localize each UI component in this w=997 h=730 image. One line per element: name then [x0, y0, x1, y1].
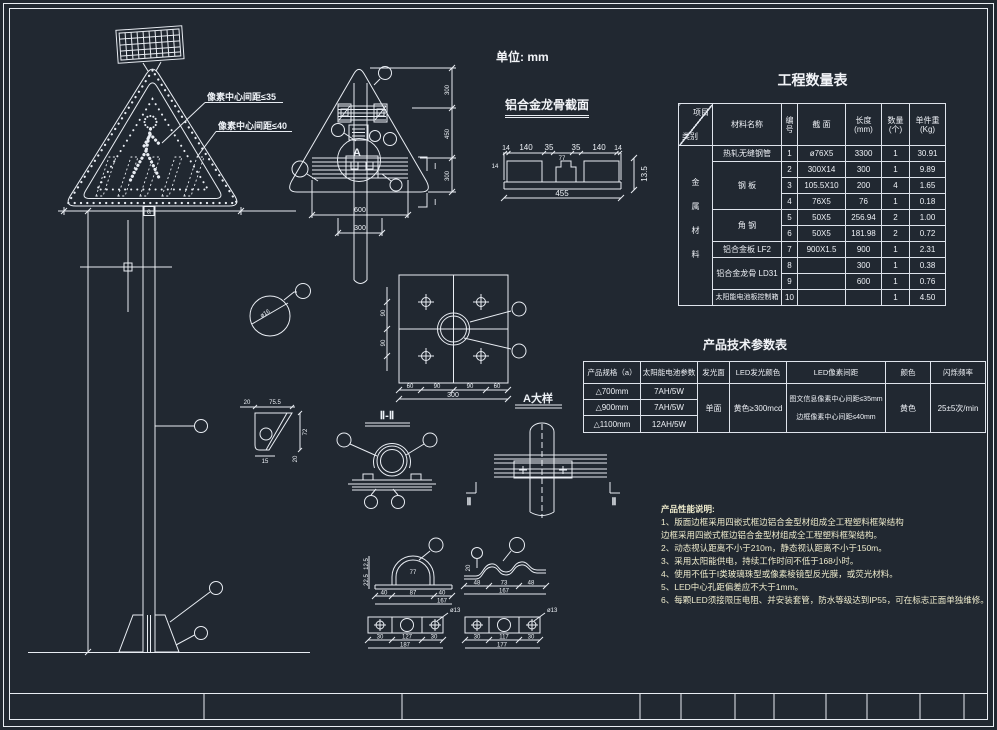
dim-label: 20 [244, 400, 251, 406]
dim-label: 127 [402, 635, 413, 641]
cell-section: ø76X5 [798, 146, 846, 162]
dim-label: 177 [497, 643, 508, 649]
param-header-color: 颜色 [886, 362, 931, 384]
pixel-pitch-40-label: 像素中心间距≤40 [217, 120, 287, 131]
unit-label: 单位: mm [496, 48, 549, 65]
cell-no: 9 [782, 274, 798, 290]
dim-label: 90 [381, 339, 387, 346]
cell-qty: 1 [882, 290, 910, 306]
cell-qty: 4 [882, 178, 910, 194]
flash-cell: 25±5次/min [931, 384, 986, 433]
cell-length: 900 [846, 242, 882, 258]
cell-section [798, 274, 846, 290]
material-cell: 热轧无缝钢管 [713, 146, 782, 162]
upper-beam-clamp [338, 104, 387, 122]
table-row: 铝合金板 LF2 7 900X1.5 900 1 2.31 [679, 242, 946, 258]
dim-label: 48 [528, 581, 535, 587]
dim-label: 20 [293, 455, 299, 462]
dim-label: 77 [410, 570, 417, 576]
params-table: 产品规格（a） 太阳能电池参数 发光面 LED发光颜色 LED像素间距 颜色 闪… [583, 361, 986, 433]
dim-label: 90 [467, 384, 474, 390]
dim-label: 300 [445, 84, 451, 95]
cell-no: 4 [782, 194, 798, 210]
cell-length: 256.94 [846, 210, 882, 226]
width-dim-label: a [147, 209, 151, 216]
hole-dia-label: ø13 [547, 608, 558, 614]
cell-qty: 1 [882, 162, 910, 178]
dim-label: 13.5 [640, 166, 649, 182]
cell-length: 600 [846, 274, 882, 290]
gusset-detail [240, 405, 302, 456]
dim-label: 22.5 [364, 574, 370, 586]
titleblock-dividers [204, 694, 964, 720]
cell-no: 10 [782, 290, 798, 306]
balloon-callout [510, 538, 525, 553]
table-row: 角 钢 5 50X5 256.94 2 1.00 [679, 210, 946, 226]
cell-length: 300 [846, 162, 882, 178]
dim-label: 140 [519, 143, 533, 152]
cell-section: 105.5X10 [798, 178, 846, 194]
cell-no: 7 [782, 242, 798, 258]
col-header-weight: 单件重 (Kg) [910, 104, 946, 146]
dim-label: 30 [431, 635, 438, 641]
dim-label: 90 [434, 384, 441, 390]
cell-weight: 0.18 [910, 194, 946, 210]
cell-section: 300X14 [798, 162, 846, 178]
dim-label: 48 [474, 581, 481, 587]
quantity-table-title: 工程数量表 [740, 70, 885, 90]
param-header-battery: 太阳能电池参数 [641, 362, 698, 384]
dim-label: 300 [445, 170, 451, 181]
dim-label: 60 [494, 384, 501, 390]
rear-view [290, 65, 456, 284]
balloon-callout [429, 538, 443, 552]
dim-label: 300 [447, 392, 459, 399]
section-i-marks [418, 157, 427, 207]
cell-no: 1 [782, 146, 798, 162]
spec-cell: △1100mm [584, 416, 641, 433]
cell-length: 200 [846, 178, 882, 194]
solar-panel-icon [116, 26, 184, 64]
cell-weight: 1.00 [910, 210, 946, 226]
dim-label: 600 [354, 207, 366, 214]
section-i-label: Ⅰ [434, 162, 436, 171]
dim-label: 14 [614, 145, 622, 152]
section-ii-mark: Ⅱ [467, 497, 472, 508]
table-row: △700mm 7AH/5W 单面 黄色≥300mcd 图文信息像素中心间距≤35… [584, 384, 986, 400]
param-header-spec: 产品规格（a） [584, 362, 641, 384]
param-header-flash: 闪烁频率 [931, 362, 986, 384]
dim-label: 75.5 [269, 400, 281, 406]
dim-label: 40 [381, 591, 388, 597]
cell-weight: 4.50 [910, 290, 946, 306]
dim-label: 300 [354, 225, 366, 232]
corner-header-cell: 项目 类别 [679, 104, 713, 146]
dim-label: 73 [501, 581, 508, 587]
cell-section: 900X1.5 [798, 242, 846, 258]
param-header-face: 发光面 [698, 362, 730, 384]
cell-no: 2 [782, 162, 798, 178]
dim-label: 87 [410, 591, 417, 597]
cell-no: 5 [782, 210, 798, 226]
dim-label: 14 [502, 145, 510, 152]
dim-label: 167 [499, 589, 510, 595]
cell-weight: 0.38 [910, 258, 946, 274]
dim-label: 167 [437, 599, 448, 605]
cell-weight: 0.76 [910, 274, 946, 290]
balloon-callouts-front [155, 420, 223, 646]
cell-no: 8 [782, 258, 798, 274]
balloon-callout [512, 344, 526, 358]
cell-section: 76X5 [798, 194, 846, 210]
battery-cell: 7AH/5W [641, 400, 698, 416]
drawing-labels: 像素中心间距≤35 像素中心间距≤40 a A Ⅰ Ⅰ 600 300 300 … [147, 84, 649, 648]
sign-post [80, 206, 172, 615]
cell-no: 6 [782, 226, 798, 242]
col-header-no: 编 号 [782, 104, 798, 146]
led-color-cell: 黄色≥300mcd [730, 384, 787, 433]
cad-drawing-sheet: 像素中心间距≤35 像素中心间距≤40 a A Ⅰ Ⅰ 600 300 300 … [0, 0, 997, 730]
material-cell: 铝合金板 LF2 [713, 242, 782, 258]
note-line: 6、每颗LED须接限压电阻、并安装套管，防水等级达到IP55，可在标志正面单独维… [661, 594, 989, 607]
post-base [28, 615, 310, 653]
phi16-detail [250, 284, 311, 337]
detail-a-title: A大样 [523, 391, 553, 405]
cell-length: 76 [846, 194, 882, 210]
rear-height-dims [370, 65, 456, 195]
note-line: 边框采用四嵌式框边铝合金型材组成全工程塑料框架结构。 [661, 529, 989, 542]
col-header-material: 材料名称 [713, 104, 782, 146]
pixel-pitch-35-label: 像素中心间距≤35 [206, 91, 276, 102]
dim-label: 450 [445, 128, 451, 139]
table-row: 金属材料 热轧无缝钢管 1 ø76X5 3300 1 30.91 [679, 146, 946, 162]
dim-label: 90 [381, 309, 387, 316]
note-line: 1、版面边框采用四嵌式框边铝合金型材组成全工程塑料框架结构 [661, 516, 989, 529]
params-table-title: 产品技术参数表 [660, 336, 830, 353]
keel-section-title: 铝合金龙骨截面 [505, 96, 589, 118]
section-ii-detail [337, 423, 437, 509]
dim-label: 30 [377, 635, 384, 641]
spec-cell: △700mm [584, 384, 641, 400]
cell-length: 181.98 [846, 226, 882, 242]
pitch-line-1: 图文信息像素中心间距≤35mm [787, 395, 885, 404]
section-ii-marks [466, 482, 620, 493]
dim-label: 140 [592, 143, 606, 152]
dim-label: 187 [400, 643, 411, 649]
dim-label: 30 [474, 635, 481, 641]
lower-beam [312, 156, 408, 178]
cell-qty: 1 [882, 258, 910, 274]
balloon-callout [296, 284, 311, 299]
param-header-pitch: LED像素间距 [787, 362, 886, 384]
pitch-line-2: 边框像素中心间距≤40mm [787, 413, 885, 422]
note-line: 3、采用太阳能供电，持续工作时间不低于168小时。 [661, 555, 989, 568]
cell-qty: 2 [882, 210, 910, 226]
balloon-callout [512, 302, 526, 316]
color-cell: 黄色 [886, 384, 931, 433]
note-line: 4、使用不低于Ⅰ类玻璃珠型或像素棱镜型反光膜，或荧光材料。 [661, 568, 989, 581]
table-row: 铝合金龙骨 LD31 8 300 1 0.38 [679, 258, 946, 274]
cell-no: 3 [782, 178, 798, 194]
material-cell: 铝合金龙骨 LD31 [713, 258, 782, 290]
dim-label: 15 [262, 459, 269, 465]
material-cell: 太阳能电池板控制箱 [713, 290, 782, 306]
cell-length [846, 290, 882, 306]
dim-label: 30 [528, 635, 535, 641]
width-dimension [58, 207, 296, 216]
cell-qty: 1 [882, 274, 910, 290]
notes-title: 产品性能说明: [661, 503, 989, 516]
dim-label: 72 [303, 428, 309, 435]
battery-cell: 7AH/5W [641, 384, 698, 400]
cell-length: 300 [846, 258, 882, 274]
detail-a-mark: A [353, 147, 361, 159]
note-line: 5、LED中心孔距偏差应不大于1mm。 [661, 581, 989, 594]
corner-top-label: 项目 [693, 108, 709, 117]
section-ii-mark: Ⅱ [612, 497, 617, 508]
keel-profile [501, 151, 637, 201]
balloon-callout [472, 548, 483, 559]
pedestrian-icon [131, 116, 162, 180]
cell-weight: 9.89 [910, 162, 946, 178]
corner-bottom-label: 类别 [682, 132, 698, 141]
dim-label: 77 [559, 156, 566, 162]
quantity-table: 项目 类别 材料名称 编 号 截 面 长度 (mm) 数量 (个) 单件重 (K… [678, 103, 946, 306]
cell-qty: 1 [882, 242, 910, 258]
cell-qty: 1 [882, 194, 910, 210]
cell-qty: 1 [882, 146, 910, 162]
cell-section: 50X5 [798, 210, 846, 226]
pitch-cell: 图文信息像素中心间距≤35mm 边框像素中心间距≤40mm [787, 384, 886, 433]
col-header-section: 截 面 [798, 104, 846, 146]
height-dimension [85, 208, 91, 655]
col-header-qty: 数量 (个) [882, 104, 910, 146]
performance-notes: 产品性能说明: 1、版面边框采用四嵌式框边铝合金型材组成全工程塑料框架结构 边框… [661, 503, 989, 607]
cell-section [798, 258, 846, 274]
table-row: 钢 板 2 300X14 300 1 9.89 [679, 162, 946, 178]
cell-length: 3300 [846, 146, 882, 162]
dim-label: 12.5 [364, 558, 370, 570]
hole-dia-label: ø16 [259, 309, 272, 320]
cell-weight: 30.91 [910, 146, 946, 162]
table-row: 太阳能电池板控制箱 10 1 4.50 [679, 290, 946, 306]
note-line: 2、动态视认距离不小于210m，静态视认距离不小于150m。 [661, 542, 989, 555]
dim-label: 35 [572, 143, 581, 152]
hole-dia-label: ø13 [450, 608, 461, 614]
material-cell: 钢 板 [713, 162, 782, 210]
cell-weight: 0.72 [910, 226, 946, 242]
dim-label: 117 [499, 635, 509, 641]
cell-section [798, 290, 846, 306]
dim-label: 20 [466, 564, 472, 571]
dim-label: 40 [439, 591, 446, 597]
dim-label: 14 [492, 164, 499, 170]
spec-cell: △900mm [584, 400, 641, 416]
material-cell: 角 钢 [713, 210, 782, 242]
dim-label: 60 [407, 384, 414, 390]
category-cell: 金属材料 [679, 146, 713, 306]
cell-weight: 1.65 [910, 178, 946, 194]
cell-section: 50X5 [798, 226, 846, 242]
section-ii-title: Ⅱ-Ⅱ [380, 410, 395, 422]
dim-label: 455 [555, 189, 569, 198]
keel-section-title-wrap: 铝合金龙骨截面 [505, 96, 589, 118]
param-header-ledcolor: LED发光颜色 [730, 362, 787, 384]
cell-qty: 2 [882, 226, 910, 242]
plate-section [384, 275, 526, 402]
col-header-length: 长度 (mm) [846, 104, 882, 146]
face-cell: 单面 [698, 384, 730, 433]
cell-weight: 2.31 [910, 242, 946, 258]
dim-label: 35 [545, 143, 554, 152]
detail-a-circle [338, 139, 381, 182]
section-i-label: Ⅰ [434, 198, 436, 207]
battery-cell: 12AH/5W [641, 416, 698, 433]
